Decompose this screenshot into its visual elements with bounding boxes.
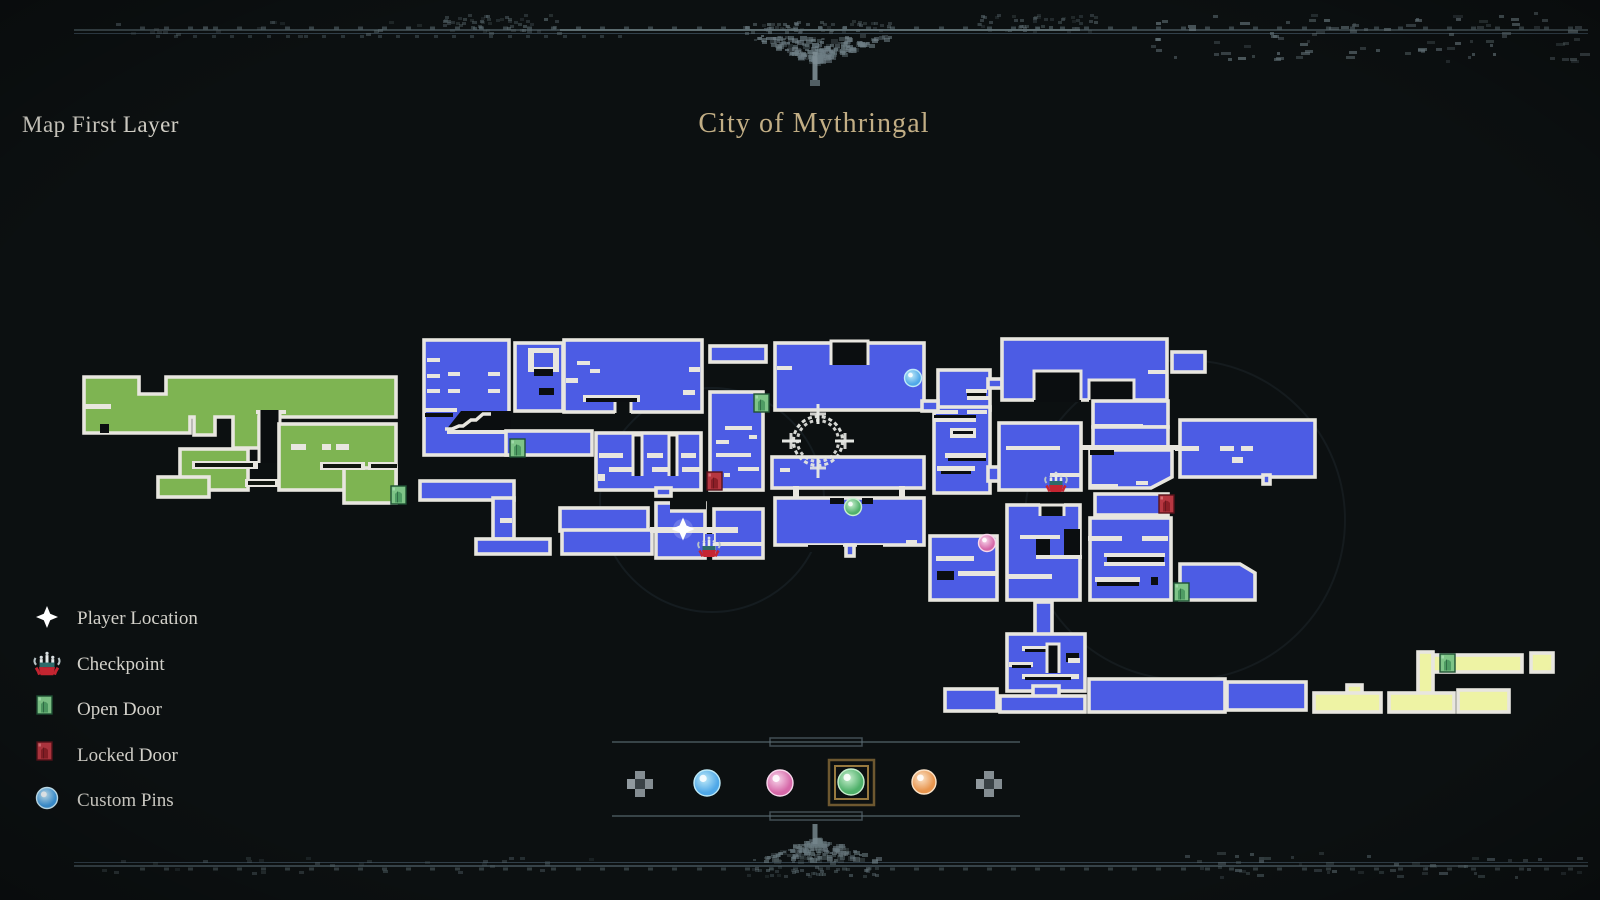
svg-text:City of Mythringal: City of Mythringal: [698, 108, 929, 139]
svg-text:Checkpoint: Checkpoint: [77, 654, 165, 675]
svg-text:Locked Door: Locked Door: [77, 745, 178, 766]
svg-text:Player Location: Player Location: [77, 608, 198, 629]
svg-text:Open Door: Open Door: [77, 699, 163, 720]
svg-text:Custom Pins: Custom Pins: [77, 790, 174, 811]
svg-text:Map First Layer: Map First Layer: [22, 112, 179, 137]
